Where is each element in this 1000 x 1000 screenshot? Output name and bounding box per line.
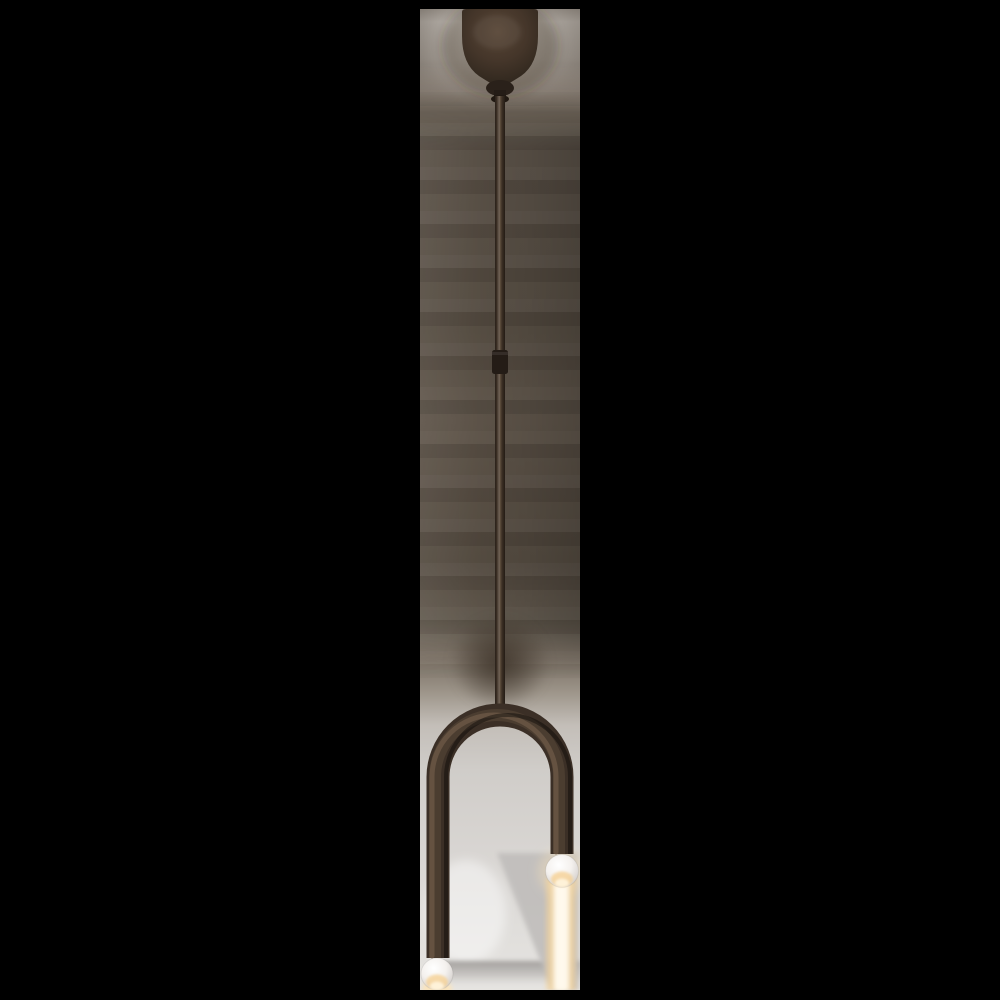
canopy-highlight — [473, 15, 521, 49]
photo-strip — [420, 9, 580, 990]
stem-joint-highlight — [492, 352, 508, 355]
light-glow-right-core — [555, 882, 568, 990]
pendant-stem-highlight — [498, 96, 501, 708]
pendant-fixture — [420, 9, 580, 990]
bulb-right-warm-core — [555, 879, 569, 888]
product-photo-canvas — [0, 0, 1000, 1000]
